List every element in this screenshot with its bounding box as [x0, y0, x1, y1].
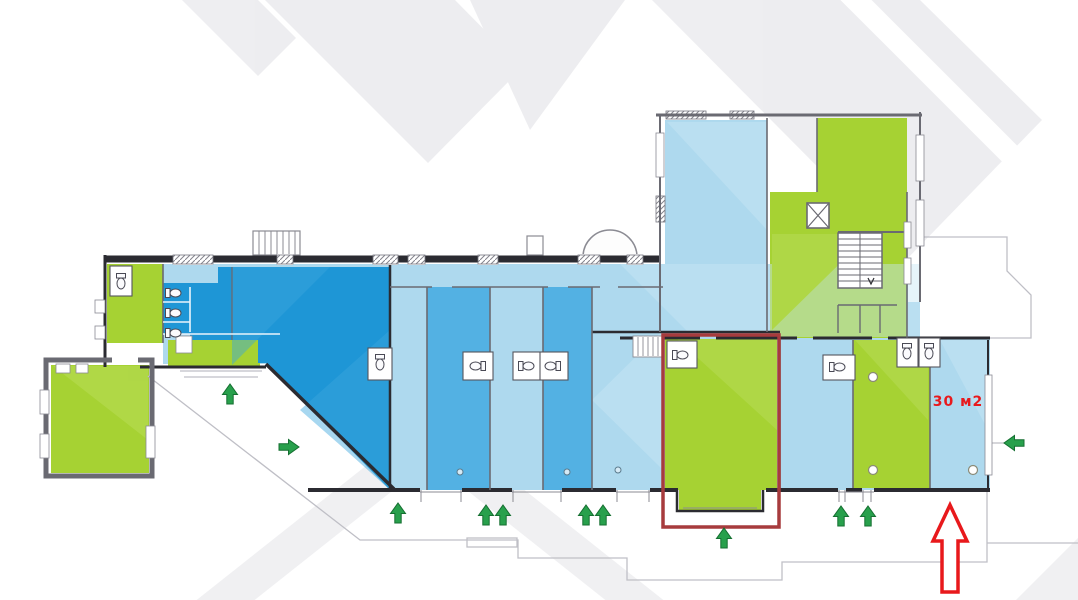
- entrance-arrow-icon: [223, 384, 238, 404]
- entrance-arrow-icon: [861, 506, 876, 526]
- elevator-icon: [807, 203, 829, 228]
- stall-nook: [163, 268, 218, 283]
- entrance-arrow-icon: [391, 503, 406, 523]
- highlight-arrow-icon: [933, 505, 967, 592]
- small-stair-nook: [633, 336, 663, 357]
- vestibule: [679, 490, 761, 510]
- entrance-arrow-icon: [834, 506, 849, 526]
- toilet-icon: [166, 309, 182, 318]
- pillar: [527, 236, 543, 255]
- entrance-arrow-icon: [279, 440, 299, 455]
- toilet-icon: [673, 351, 689, 360]
- toilet-icon: [830, 363, 846, 372]
- toilet-icon: [166, 289, 182, 298]
- room-strip-2: [543, 287, 592, 490]
- toilet-icon: [117, 274, 126, 290]
- toilet-icon: [470, 362, 486, 371]
- toilet-icon: [903, 344, 912, 360]
- toilet-icon: [519, 362, 535, 371]
- room-strip-1: [427, 287, 490, 490]
- area-label: 30 м2: [933, 394, 984, 410]
- exterior-staircase-icon: [253, 231, 300, 255]
- toilet-icon: [925, 344, 934, 360]
- toilet-icon: [545, 362, 561, 371]
- entrance-arrow-icon: [717, 528, 732, 548]
- floor-plan-canvas: 30 м2: [0, 0, 1078, 600]
- toilet-icon: [376, 355, 385, 371]
- entrance-arrow-icon: [579, 505, 594, 525]
- entrance-arrow-icon: [1004, 436, 1024, 451]
- entrance-arrow-icon: [596, 505, 611, 525]
- staircase-icon: [838, 233, 882, 288]
- floor-plan-page: 30 м2: [0, 0, 1078, 600]
- toilet-icon: [166, 329, 182, 338]
- strip-door-gap: [176, 336, 192, 353]
